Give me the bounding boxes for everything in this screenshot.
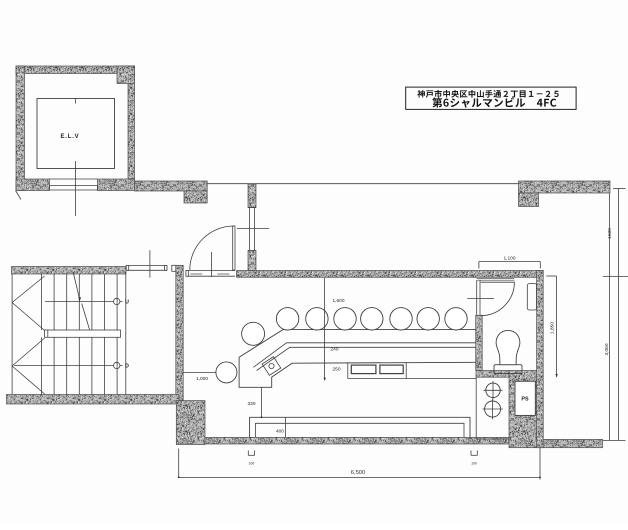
svg-text:250: 250 bbox=[333, 367, 341, 373]
svg-text:3,060: 3,060 bbox=[604, 343, 610, 355]
svg-text:PS: PS bbox=[521, 397, 529, 403]
svg-text:E.L.V: E.L.V bbox=[60, 134, 79, 140]
svg-text:6,500: 6,500 bbox=[351, 470, 366, 476]
svg-text:D: D bbox=[125, 364, 129, 370]
svg-text:U: U bbox=[125, 300, 129, 306]
svg-text:100: 100 bbox=[471, 462, 477, 466]
svg-text:1,600: 1,600 bbox=[333, 298, 345, 304]
svg-text:400: 400 bbox=[276, 428, 284, 434]
svg-text:100: 100 bbox=[249, 462, 255, 466]
svg-text:1,000: 1,000 bbox=[196, 376, 208, 382]
svg-text:1600: 1600 bbox=[607, 228, 613, 239]
svg-text:1,850: 1,850 bbox=[550, 322, 556, 334]
svg-text:1,100: 1,100 bbox=[503, 256, 515, 262]
svg-text:330: 330 bbox=[248, 401, 256, 407]
svg-text:240: 240 bbox=[331, 347, 339, 353]
